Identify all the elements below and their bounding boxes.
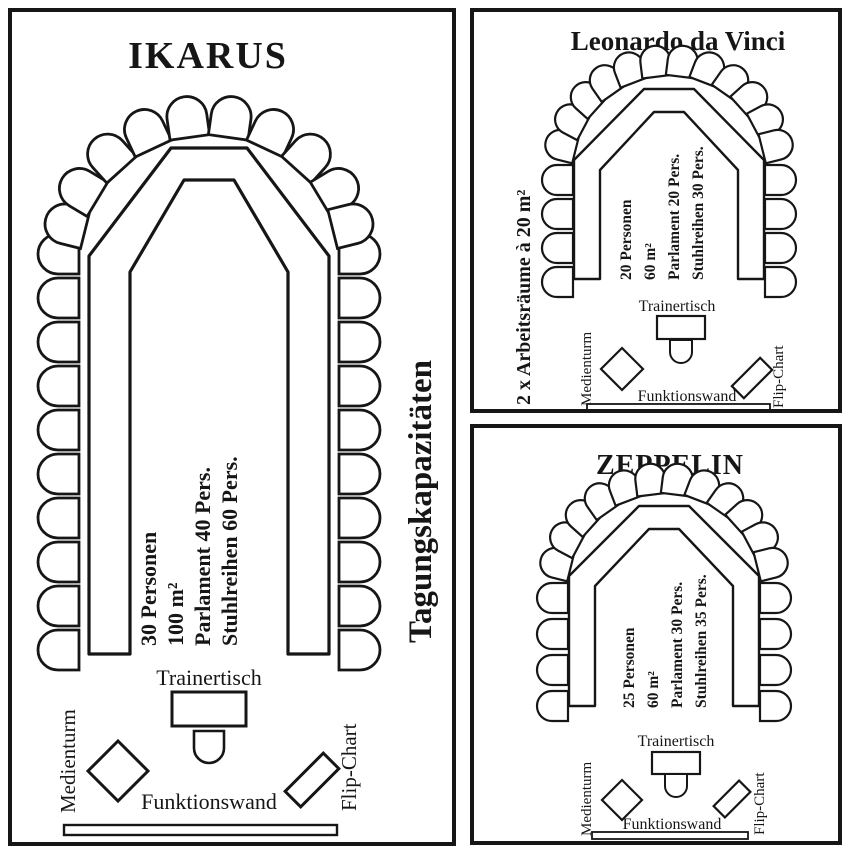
chair-icon [38,410,79,450]
chair-icon [760,583,791,613]
function-wall-bar [64,825,337,835]
chair-icon [542,267,573,297]
chair-icon [537,619,568,649]
chair-icon [339,410,380,450]
chair-icon [339,542,380,582]
capacity-line: 60 m² [645,671,662,708]
chair-icon [38,278,79,318]
trainer-table [657,316,705,339]
function-wall-label: Funktionswand [141,789,277,814]
trainer-chair-icon [194,731,224,763]
flip-chart-rect [714,781,751,818]
side-note: 2 x Arbeitsräume à 20 m² [513,190,535,405]
function-wall-label: Funktionswand [638,388,737,405]
chair-icon [537,691,568,721]
chair-icon [38,542,79,582]
chair-icon [765,199,796,229]
flip-chart-rect [285,753,339,807]
room-panel-leonardo: Leonardo da Vinci 20 Personen 60 m² Parl… [470,8,842,413]
chair-icon [542,165,573,195]
chair-icon [765,267,796,297]
chair-icon [339,630,380,670]
trainer-table [172,692,246,726]
function-wall-bar [592,832,748,839]
capacity-line: Stuhlreihen 60 Pers. [217,456,242,646]
chair-icon [38,366,79,406]
side-note: Tagungskapazitäten [403,360,439,643]
flip-chart-rect [732,358,772,398]
media-tower-label: Medienturm [579,332,595,406]
capacity-line: Stuhlreihen 35 Pers. [693,574,710,708]
chair-icon [38,322,79,362]
media-tower-diamond [601,348,643,390]
media-tower-diamond [88,741,148,801]
trainer-chair-icon [665,774,687,797]
chair-icon [765,165,796,195]
chair-icon [339,498,380,538]
capacity-text: 20 Personen 60 m² Parlament 20 Pers. Stu… [618,146,707,280]
room-panel-zeppelin: ZEPPELIN 25 Personen 60 m² Parlament 30 … [470,424,842,845]
chair-icon [38,454,79,494]
chair-icon [765,233,796,263]
trainer-table-label: Trainertisch [638,733,715,750]
floor-plan-leonardo: Leonardo da Vinci 20 Personen 60 m² Parl… [474,12,838,409]
trainer-table-label: Trainertisch [639,298,716,315]
chair-icon [760,655,791,685]
chair-icon [339,586,380,626]
capacity-line: Stuhlreihen 30 Pers. [690,146,707,280]
chair-icon [339,322,380,362]
function-wall-label: Funktionswand [623,816,722,833]
chair-icon [339,454,380,494]
floor-plan-zeppelin: ZEPPELIN 25 Personen 60 m² Parlament 30 … [474,428,838,841]
function-wall-bar [587,404,770,409]
flip-chart-label: Flip-Chart [752,772,768,835]
media-tower-diamond [602,780,642,820]
chair-icon [537,655,568,685]
chair-icon [759,127,796,164]
capacity-line: Parlament 20 Pers. [666,154,683,280]
capacity-line: 60 m² [642,243,659,280]
room-panel-ikarus: IKARUS 30 Personen 100 m² Parlament 40 P… [8,8,456,846]
media-tower-label: Medienturm [579,762,595,836]
chair-icon [38,586,79,626]
chair-icon [760,619,791,649]
chair-icon [542,233,573,263]
chair-icon [164,94,209,140]
chair-icon [339,366,380,406]
page: { "palette": { "ink": "#161616", "paper"… [0,0,850,859]
flip-chart-label: Flip-Chart [771,345,787,408]
floor-plan-ikarus: IKARUS 30 Personen 100 m² Parlament 40 P… [12,12,452,842]
capacity-line: Parlament 40 Pers. [190,467,215,646]
room-title: IKARUS [128,35,288,77]
capacity-line: 20 Personen [618,199,635,280]
chair-icon [760,691,791,721]
trainer-table-label: Trainertisch [156,665,262,690]
capacity-line: Parlament 30 Pers. [669,582,686,708]
chair-icon [537,583,568,613]
flip-chart-label: Flip-Chart [337,723,361,811]
capacity-text: 30 Personen 100 m² Parlament 40 Pers. St… [136,456,242,646]
media-tower-label: Medienturm [56,709,80,813]
u-table-outline [569,506,759,706]
chair-icon [38,498,79,538]
chair-icon [339,278,380,318]
chair-icon [542,199,573,229]
trainer-chair-icon [670,340,692,363]
chair-icon [38,630,79,670]
capacity-line: 100 m² [163,582,188,646]
trainer-table [652,752,700,774]
capacity-line: 25 Personen [621,627,638,708]
capacity-text: 25 Personen 60 m² Parlament 30 Pers. Stu… [621,574,710,708]
capacity-line: 30 Personen [136,532,161,646]
chair-icon [208,94,253,140]
